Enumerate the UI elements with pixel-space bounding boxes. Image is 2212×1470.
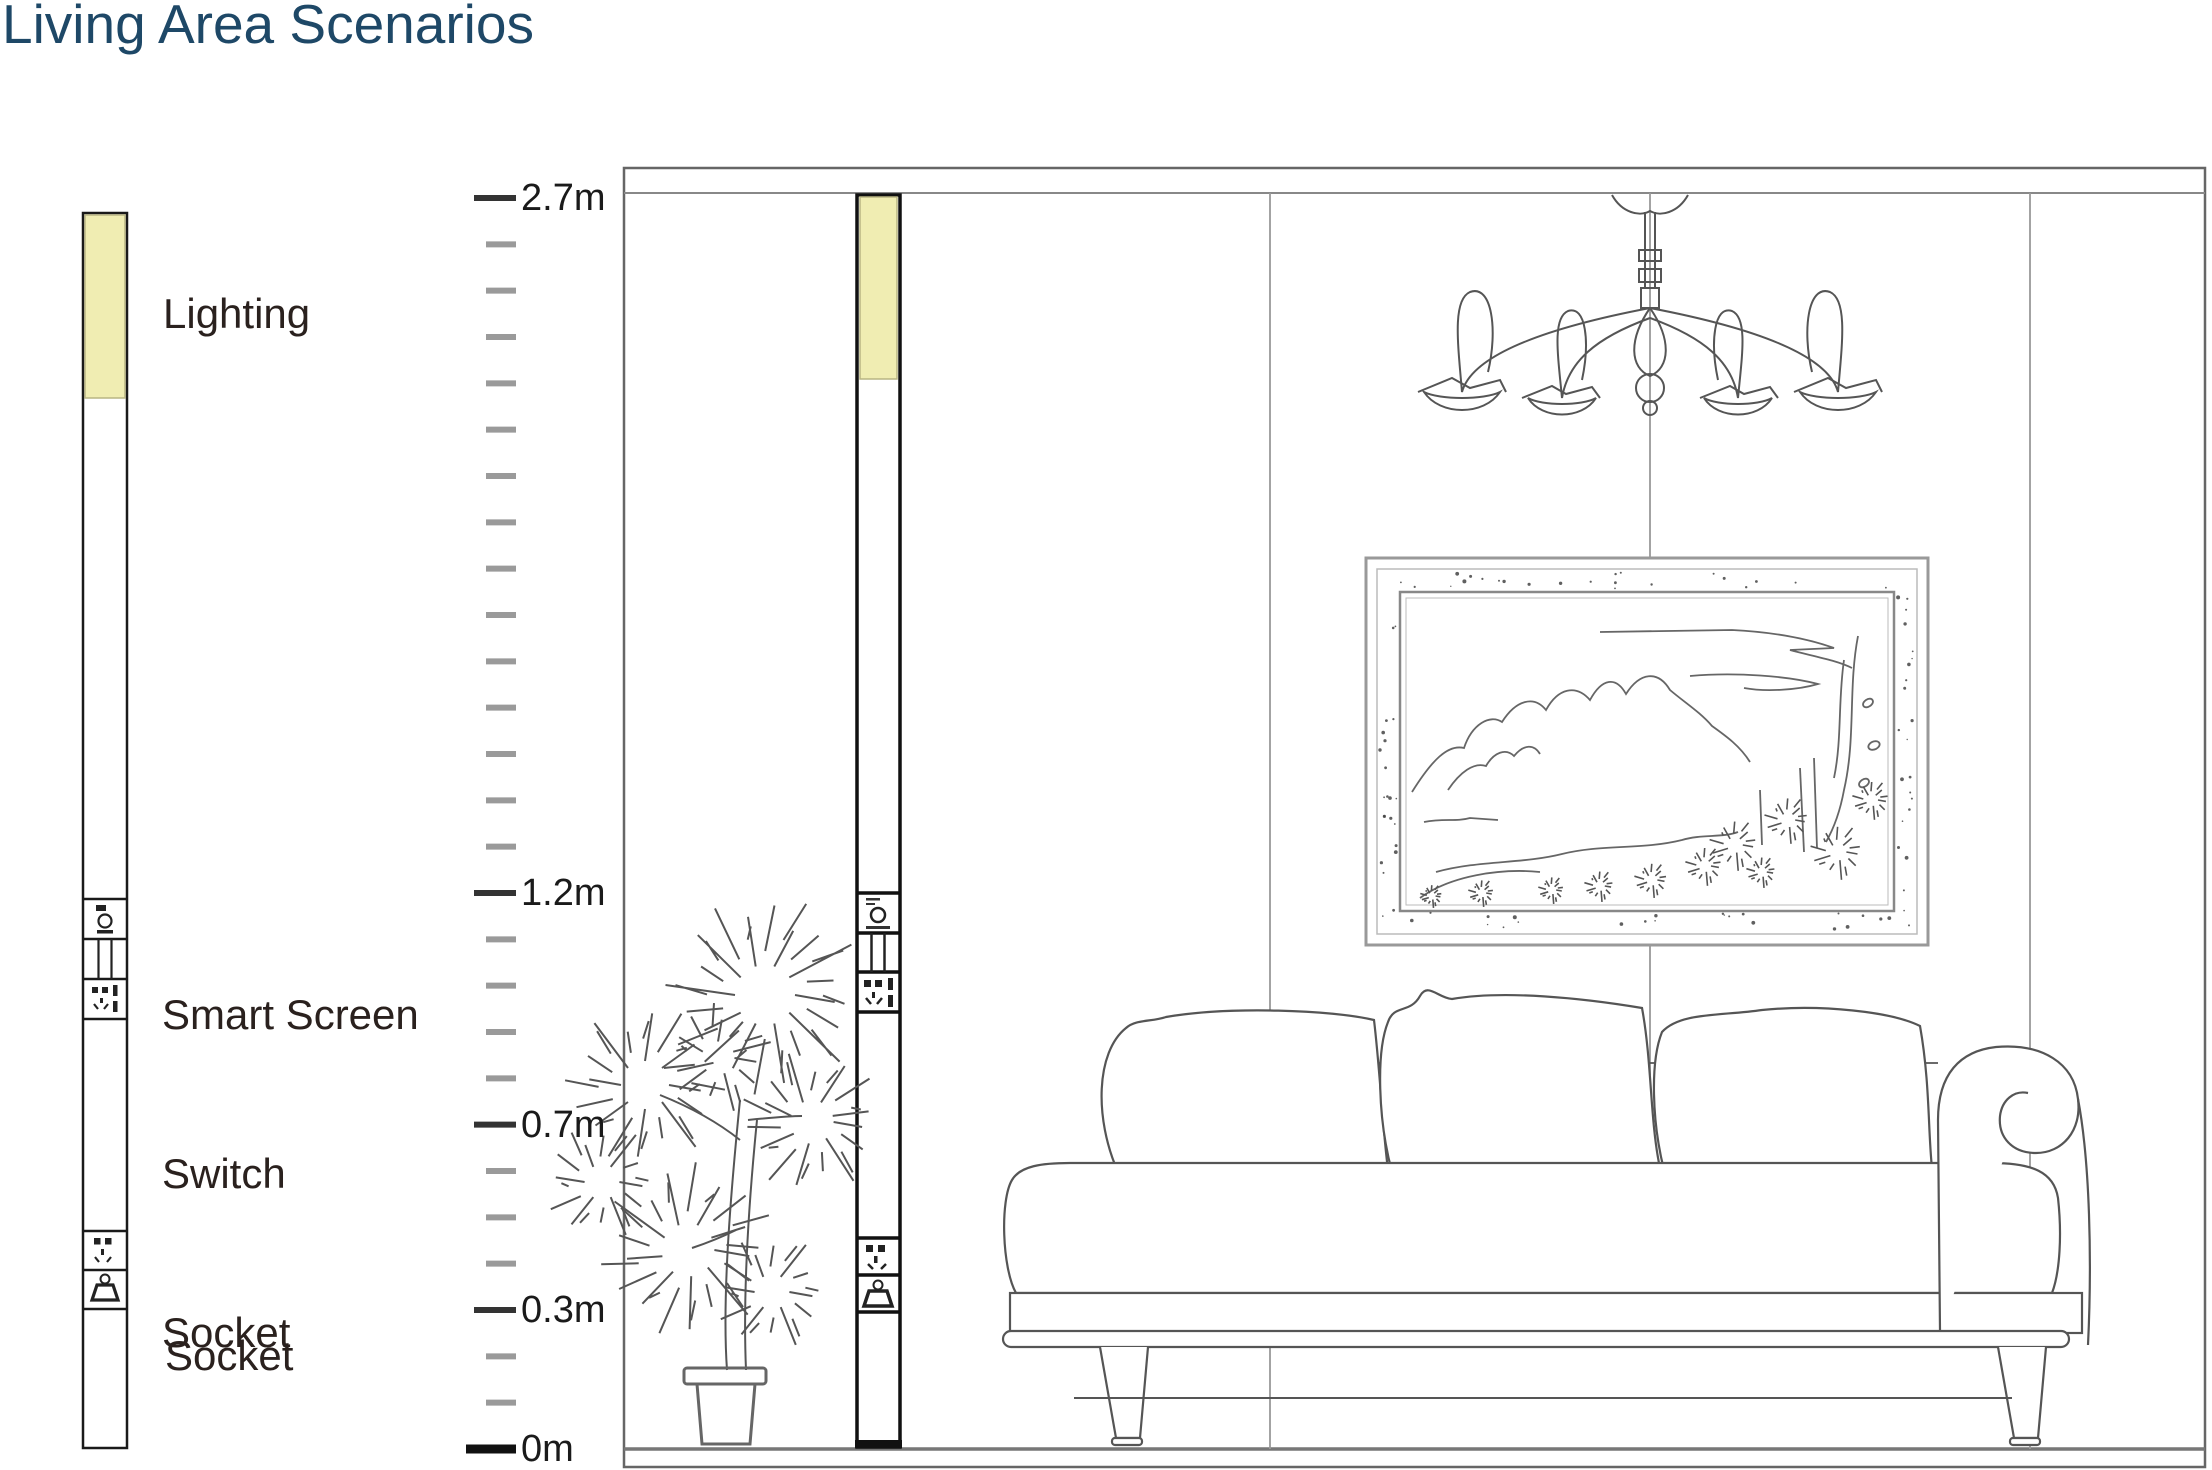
ruler-label-0-7m: 0.7m [521,1105,605,1145]
power-track-room [855,195,902,1448]
label-low-modules: Socket Night [165,1221,293,1470]
ruler-label-0m: 0m [521,1429,574,1469]
power-track-legend [83,213,127,1448]
label-smart-screen: Smart Screen [162,988,419,1041]
living-area-scenarios-diagram: Living Area Scenarios Lighting Smart Scr… [0,0,2212,1470]
ruler-label-1-2m: 1.2m [521,873,605,913]
label-lighting: Lighting [163,290,310,338]
label-switch: Switch [162,1147,419,1200]
height-ruler [466,198,516,1449]
picture-frame [1366,558,1928,945]
ruler-label-2-7m: 2.7m [521,178,605,218]
sofa [1003,990,2090,1445]
potted-plant [551,904,870,1444]
ruler-label-0-3m: 0.3m [521,1290,605,1330]
lighting-module [860,197,897,379]
label-socket-low: Socket [165,1329,293,1383]
lighting-module [85,215,125,398]
page-title: Living Area Scenarios [2,0,534,56]
